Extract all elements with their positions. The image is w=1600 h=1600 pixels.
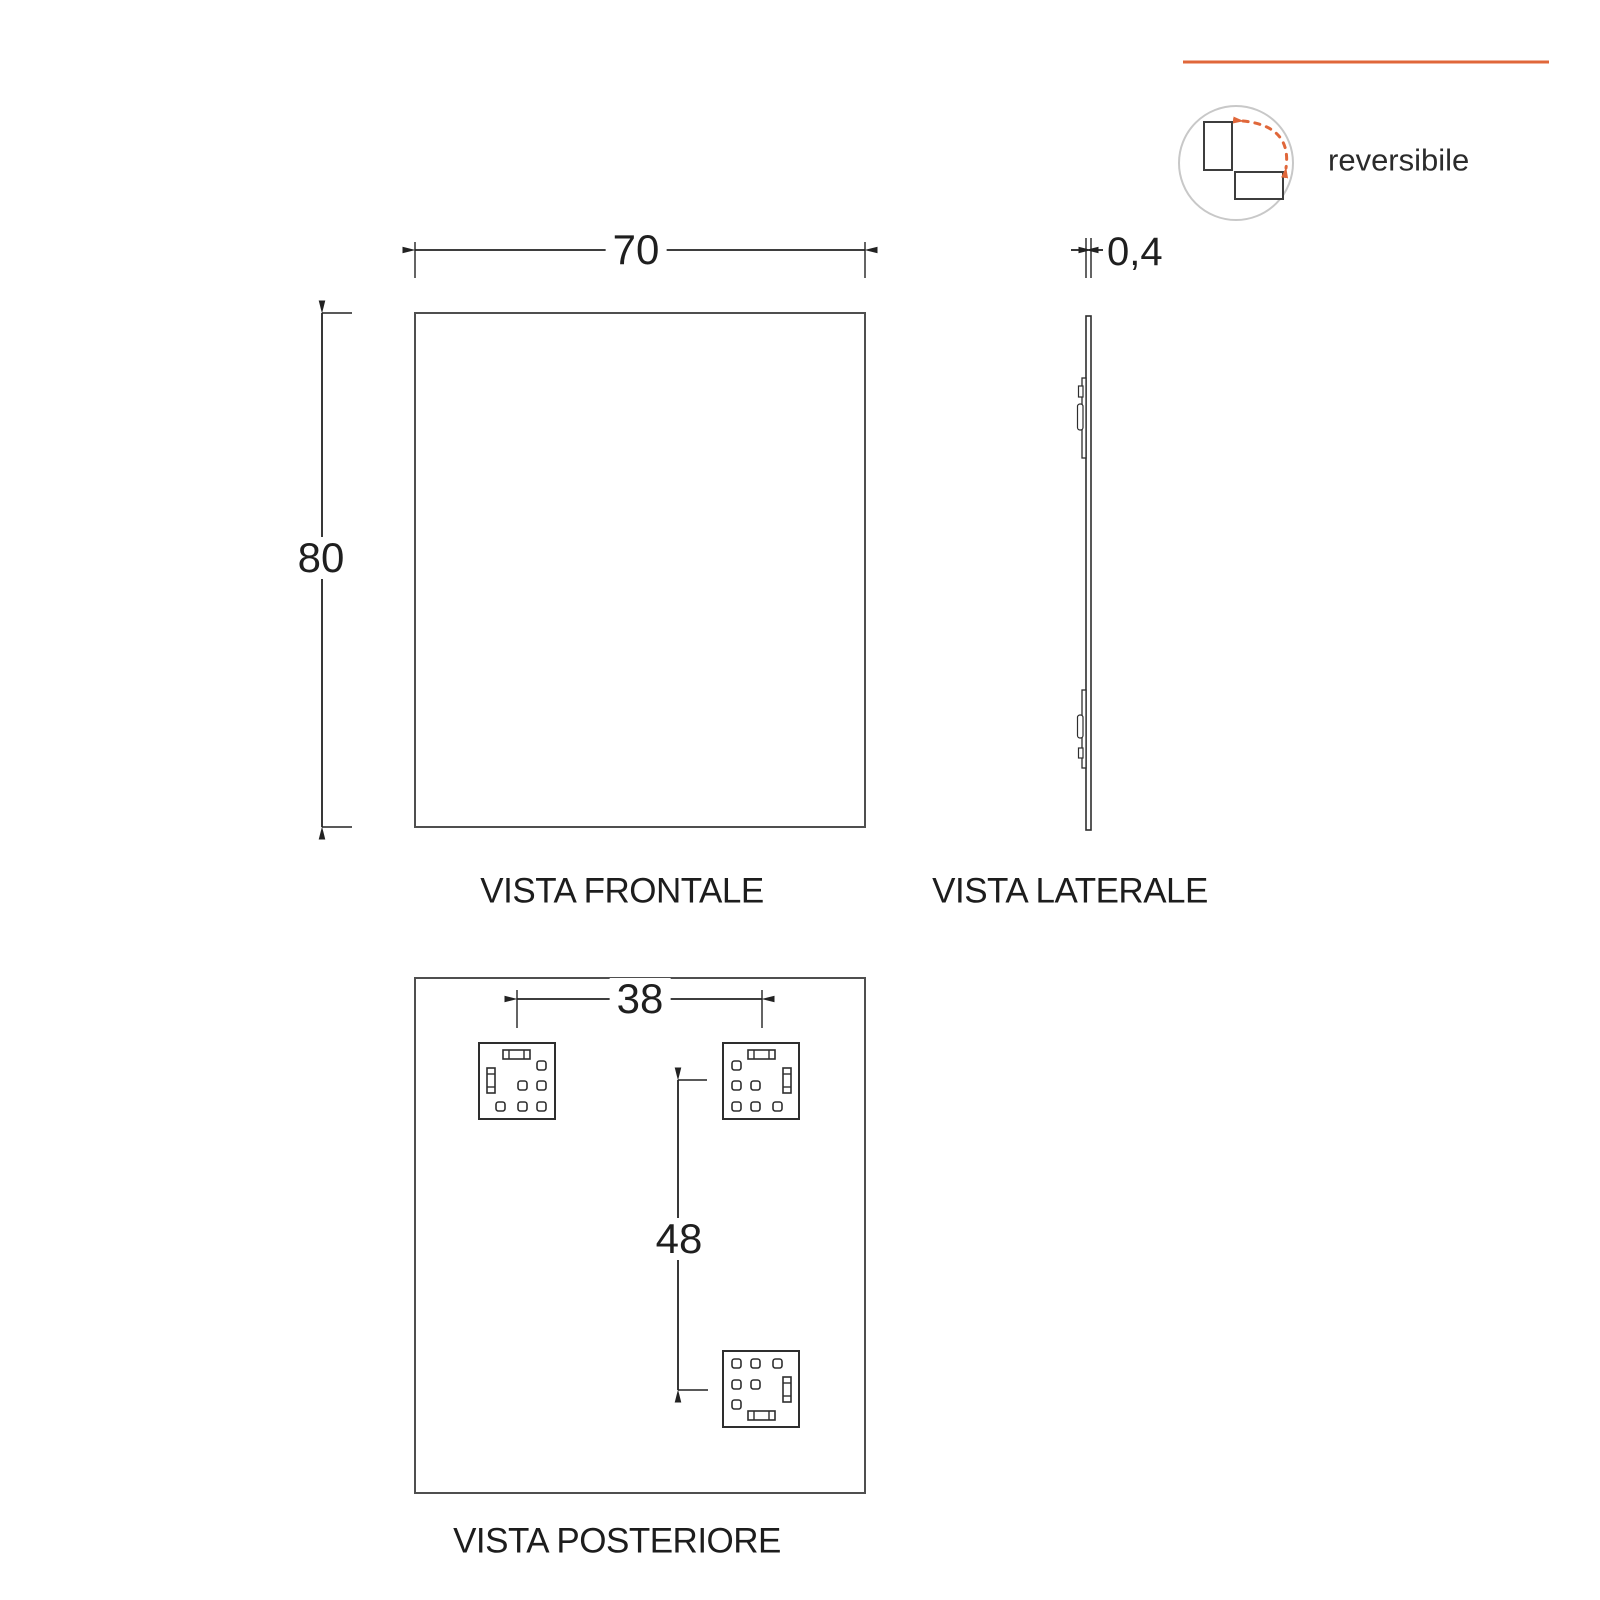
bracket-bottom [723,1351,799,1427]
side-lower-hook-profile [1078,690,1087,768]
reversible-badge-label: reversibile [1328,145,1469,176]
side-thickness-dimension [1071,238,1103,278]
front-height-dim-label: 80 [291,537,352,579]
bracket-top-left [479,1043,555,1119]
drawing-linework [0,0,1600,1600]
rear-view-caption: VISTA POSTERIORE [453,1524,781,1559]
side-view-caption: VISTA LATERALE [932,874,1208,909]
side-upper-hook-profile [1078,378,1087,458]
rear-horizontal-spacing-dim-label: 38 [610,978,671,1020]
side-thickness-dim-label: 0,4 [1107,232,1163,272]
front-width-dim-label: 70 [606,229,667,271]
reversible-rotation-icon [1179,106,1293,220]
bracket-top-right [723,1043,799,1119]
technical-drawing-canvas: 70 80 0,4 38 48 VISTA FRONTALE VISTA LAT… [0,0,1600,1600]
side-view-profile [1078,316,1092,830]
rear-vertical-spacing-dim-label: 48 [649,1218,710,1260]
front-view-caption: VISTA FRONTALE [480,874,763,909]
front-view-outline [415,313,865,827]
